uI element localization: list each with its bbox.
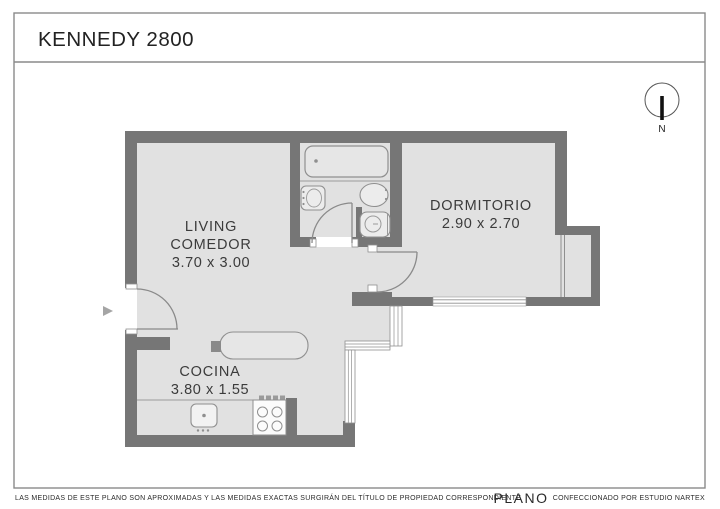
wall-left-lower (125, 330, 137, 447)
living-label-line1: LIVING (185, 219, 237, 235)
wall-top (125, 131, 567, 143)
bathtub-icon (300, 146, 390, 181)
floor-plan-canvas: KENNEDY 2800 N (0, 0, 720, 509)
wall-bath-dorm (390, 143, 402, 247)
living-label-line2: COMEDOR (170, 237, 251, 253)
stove-icon (253, 396, 286, 436)
compass-n-label: N (658, 124, 665, 135)
footer-disclaimer: LAS MEDIDAS DE ESTE PLANO SON APROXIMADA… (15, 493, 521, 502)
wall-left-upper (125, 131, 137, 288)
bathroom-sink-icon (301, 186, 325, 210)
wall-stove-side (286, 398, 297, 435)
dorm-window (433, 297, 526, 306)
toilet-icon (360, 212, 390, 237)
cocina-dimensions: 3.80 x 1.55 (171, 382, 249, 398)
cocina-label: COCINA (179, 364, 240, 380)
footer-credit: CONFECCIONADO POR ESTUDIO NARTEX (553, 495, 705, 502)
bidet-icon (360, 184, 388, 207)
dormitorio-dimensions: 2.90 x 2.70 (442, 216, 520, 232)
wall-bottom-dorm (392, 297, 433, 306)
wall-kitchen-stub (137, 337, 170, 350)
kitchen-island-icon (211, 332, 308, 359)
floor-plan-page: KENNEDY 2800 N (0, 0, 720, 509)
wall-bottom-kitchen (125, 435, 355, 447)
living-dimensions: 3.70 x 3.00 (172, 255, 250, 271)
wall-bath-left (290, 143, 300, 247)
dormitorio-label: DORMITORIO (430, 198, 532, 214)
wall-right-dorm (555, 131, 567, 226)
wall-stub-dorm-door (352, 292, 392, 306)
page-title: KENNEDY 2800 (38, 28, 194, 51)
wall-bottom-closet (526, 297, 600, 306)
footer-plan-label: PLANO (494, 490, 549, 506)
footer: LAS MEDIDAS DE ESTE PLANO SON APROXIMADA… (15, 490, 705, 506)
wall-closet-right (591, 226, 600, 306)
